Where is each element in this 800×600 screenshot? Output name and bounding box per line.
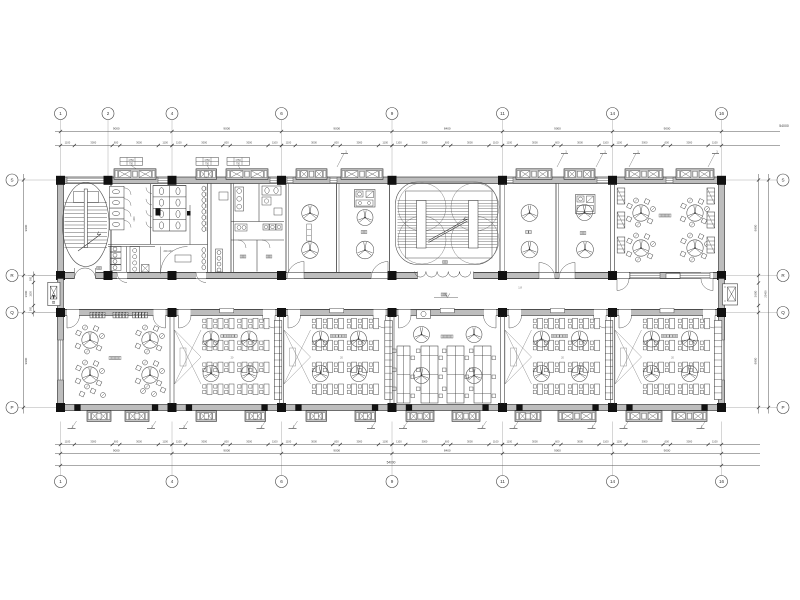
svg-text:1200: 1200 [134,216,136,222]
svg-text:3000: 3000 [422,141,428,145]
svg-text:11: 11 [500,111,505,116]
svg-text:9900: 9900 [754,357,758,364]
svg-text:750: 750 [129,163,134,166]
svg-text:750: 750 [205,163,210,166]
svg-text:9: 9 [391,111,394,116]
svg-text:1800: 1800 [30,291,33,297]
svg-text:4: 4 [171,479,174,484]
svg-text:1100: 1100 [65,141,71,145]
svg-text:S: S [10,178,13,183]
svg-text:14: 14 [610,479,616,484]
svg-text:3000: 3000 [201,141,207,145]
svg-text:600: 600 [334,141,339,145]
svg-text:600: 600 [555,440,560,444]
svg-text:Q: Q [781,310,785,315]
svg-text:600: 600 [665,440,670,444]
svg-text:Q: Q [10,310,14,315]
svg-text:600: 600 [334,440,339,444]
svg-text:3000: 3000 [136,440,142,444]
svg-text:1750: 1750 [235,159,241,162]
svg-text:600: 600 [665,141,670,145]
svg-text:4: 4 [171,111,174,116]
svg-text:9000: 9000 [664,449,671,453]
svg-text:900: 900 [30,276,33,281]
svg-text:6: 6 [280,111,283,116]
svg-text:1: 1 [59,111,62,116]
svg-text:750: 750 [236,163,241,166]
svg-text:9000: 9000 [223,449,230,453]
svg-text:1100: 1100 [616,440,622,444]
svg-text:9000: 9000 [333,449,340,453]
svg-text:3000: 3000 [467,141,473,145]
svg-text:9000: 9000 [113,449,120,453]
svg-text:600: 600 [114,141,119,145]
svg-text:54000: 54000 [779,124,789,128]
svg-text:2: 2 [107,111,110,116]
svg-text:1750: 1750 [128,159,134,162]
svg-text:9000: 9000 [554,449,561,453]
svg-text:8400: 8400 [444,127,451,131]
svg-text:S: S [781,178,784,183]
svg-text:16: 16 [719,111,725,116]
svg-text:1100: 1100 [712,440,718,444]
svg-text:1100: 1100 [603,440,609,444]
svg-text:9900: 9900 [24,224,28,231]
svg-text:1100: 1100 [507,440,513,444]
svg-text:3000: 3000 [577,440,583,444]
svg-text:9000: 9000 [664,127,671,131]
svg-text:1.8: 1.8 [518,286,522,290]
svg-text:3000: 3000 [642,141,648,145]
svg-text:3600: 3600 [24,290,28,297]
svg-text:9000: 9000 [113,127,120,131]
svg-text:3000: 3000 [90,141,96,145]
svg-text:P: P [10,405,13,410]
svg-text:3000: 3000 [577,141,583,145]
svg-text:8400: 8400 [444,449,451,453]
svg-text:1100: 1100 [493,440,499,444]
svg-text:3000: 3000 [422,440,428,444]
svg-text:6: 6 [280,479,283,484]
svg-text:3000: 3000 [686,141,692,145]
svg-text:3000: 3000 [356,141,362,145]
svg-text:600: 600 [224,440,229,444]
svg-text:3000: 3000 [356,440,362,444]
svg-text:3600: 3600 [754,290,758,297]
svg-text:3000: 3000 [136,141,142,145]
svg-text:1: 1 [59,479,62,484]
svg-text:3000: 3000 [532,141,538,145]
svg-text:3000: 3000 [311,141,317,145]
svg-text:3000: 3000 [311,440,317,444]
svg-text:200×200: 200×200 [163,250,173,253]
svg-text:9000: 9000 [223,127,230,131]
svg-text:1100: 1100 [162,141,168,145]
svg-text:1100: 1100 [286,141,292,145]
svg-text:3000: 3000 [642,440,648,444]
svg-text:14: 14 [610,111,616,116]
svg-text:3000: 3000 [467,440,473,444]
svg-text:1100: 1100 [162,440,168,444]
svg-text:1100: 1100 [616,141,622,145]
svg-text:11: 11 [500,479,505,484]
svg-text:9000: 9000 [554,127,561,131]
svg-text:1100: 1100 [396,141,402,145]
svg-text:600: 600 [445,440,450,444]
svg-text:3000: 3000 [246,440,252,444]
svg-text:1100: 1100 [712,141,718,145]
svg-text:9900: 9900 [754,224,758,231]
svg-text:600: 600 [555,141,560,145]
svg-text:9900: 9900 [24,357,28,364]
svg-text:3000: 3000 [246,141,252,145]
svg-text:900: 900 [30,306,33,311]
svg-text:3000: 3000 [201,440,207,444]
svg-text:54000: 54000 [387,461,396,465]
svg-text:1100: 1100 [286,440,292,444]
svg-text:3000: 3000 [686,440,692,444]
svg-text:3000: 3000 [90,440,96,444]
svg-text:600: 600 [114,440,119,444]
svg-text:1100: 1100 [272,141,278,145]
svg-text:9: 9 [391,479,394,484]
svg-text:23400: 23400 [764,290,768,298]
svg-text:P: P [781,405,784,410]
svg-text:1100: 1100 [382,440,388,444]
svg-text:3000: 3000 [532,440,538,444]
svg-text:9000: 9000 [333,127,340,131]
svg-text:1100: 1100 [507,141,513,145]
svg-text:600: 600 [224,141,229,145]
svg-text:1100: 1100 [65,440,71,444]
svg-text:1100: 1100 [176,141,182,145]
svg-text:1100: 1100 [396,440,402,444]
svg-text:1100: 1100 [272,440,278,444]
svg-text:600: 600 [445,141,450,145]
svg-text:1100: 1100 [603,141,609,145]
svg-text:16: 16 [719,479,725,484]
svg-text:1750: 1750 [204,159,210,162]
svg-text:1100: 1100 [382,141,388,145]
svg-text:1100: 1100 [176,440,182,444]
svg-text:1100: 1100 [493,141,499,145]
